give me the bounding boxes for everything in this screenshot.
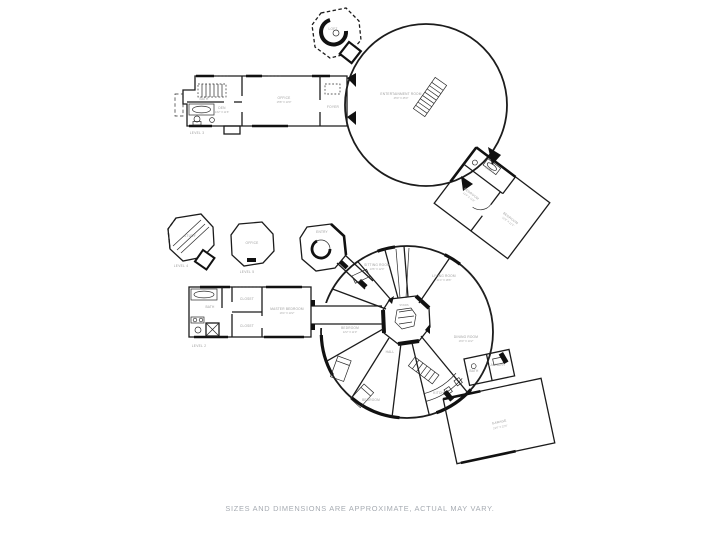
- bath-fixtures: [191, 289, 219, 336]
- upper-tower: LOFT: [312, 8, 361, 63]
- room-label: BEDROOM: [341, 326, 359, 330]
- room-label: BEDROOM: [362, 398, 380, 402]
- upper-left-wing: DEN 14'2" X 11'6" OFFICE 15'8" X 13'0" B…: [175, 76, 347, 135]
- room-dims: 16'4" X 13'2": [280, 311, 295, 315]
- entry-tower: ENTRY: [300, 224, 373, 289]
- room-label: CLOSET: [240, 324, 254, 328]
- room-label: OFFICE: [246, 241, 259, 245]
- room-label: MASTER BEDROOM: [270, 307, 304, 311]
- room-label: LAUNDRY: [489, 363, 506, 367]
- level-label: LEVEL 3: [190, 131, 205, 135]
- table-symbol: [325, 84, 340, 94]
- level-label: LEVEL 4: [174, 264, 189, 268]
- room-label: ENTERTAINMENT ROOM: [380, 92, 421, 96]
- upper-round-room-outline: [345, 24, 507, 186]
- room-dims: 21'4" X 18'6": [437, 278, 452, 282]
- room-dims: 45'0" X 45'0": [394, 96, 409, 100]
- room-label: CLOSET: [240, 297, 254, 301]
- room-label: DINING ROOM: [454, 335, 478, 339]
- lower-floor-plan: STUDY LEVEL 4 OFFICE LEVEL 5 ENTRY: [168, 214, 555, 464]
- wall-wedge: [347, 111, 356, 125]
- level-label: LEVEL 2: [192, 344, 207, 348]
- room-dims: 15'8" X 13'0": [277, 100, 292, 104]
- central-stair-core: STAIRS: [383, 296, 430, 344]
- garage-wing: GARAGE 23'0" X 22'6" BATH LAUNDRY: [443, 349, 555, 463]
- room-dims: 12'2" X 11'0": [343, 330, 358, 334]
- room-label: STAIRS: [399, 303, 408, 307]
- room-label: LOFT: [329, 27, 338, 31]
- upper-floor-plan: ENTERTAINMENT ROOM 45'0" X 45'0" LOFT: [175, 8, 550, 259]
- lower-tower-study: STUDY LEVEL 4: [168, 214, 214, 269]
- room-dims: 16'0" X 14'2": [459, 339, 474, 343]
- room-label: STUDY: [184, 234, 196, 238]
- room-label: FOYER: [327, 105, 339, 109]
- room-label: HALL: [386, 350, 395, 354]
- room-label: SITTING ROOM: [364, 263, 390, 267]
- floorplan-drawing: ENTERTAINMENT ROOM 45'0" X 45'0" LOFT: [0, 0, 711, 533]
- room-dims: 13'6" X 12'0": [370, 267, 385, 271]
- floorplan-page: ENTERTAINMENT ROOM 45'0" X 45'0" LOFT: [0, 0, 711, 533]
- room-label: BATH: [469, 369, 479, 373]
- room-label: BATH: [199, 97, 209, 101]
- upper-bedroom-wing: BEDROOM 13'4" X 11'8" BEDROOM 12'8" X 11…: [434, 147, 550, 258]
- room-label: LIVING ROOM: [432, 274, 456, 278]
- stair-hatch-symbol: [413, 77, 446, 116]
- room-label: DEN: [218, 106, 226, 110]
- bath-fixtures: [189, 104, 214, 125]
- room-label: ENTRY: [316, 230, 328, 234]
- room-label: BATH: [205, 305, 215, 309]
- disclaimer-caption: SIZES AND DIMENSIONS ARE APPROXIMATE, AC…: [225, 504, 494, 513]
- room-label: OFFICE: [278, 96, 291, 100]
- level-label: LEVEL 5: [240, 270, 255, 274]
- lower-tower-office: OFFICE LEVEL 5: [231, 222, 274, 274]
- stairs-symbol: [198, 84, 226, 97]
- stairs-symbol: [408, 357, 439, 384]
- room-dims: 14'2" X 11'6": [215, 110, 230, 114]
- room-label: BATH: [485, 165, 495, 174]
